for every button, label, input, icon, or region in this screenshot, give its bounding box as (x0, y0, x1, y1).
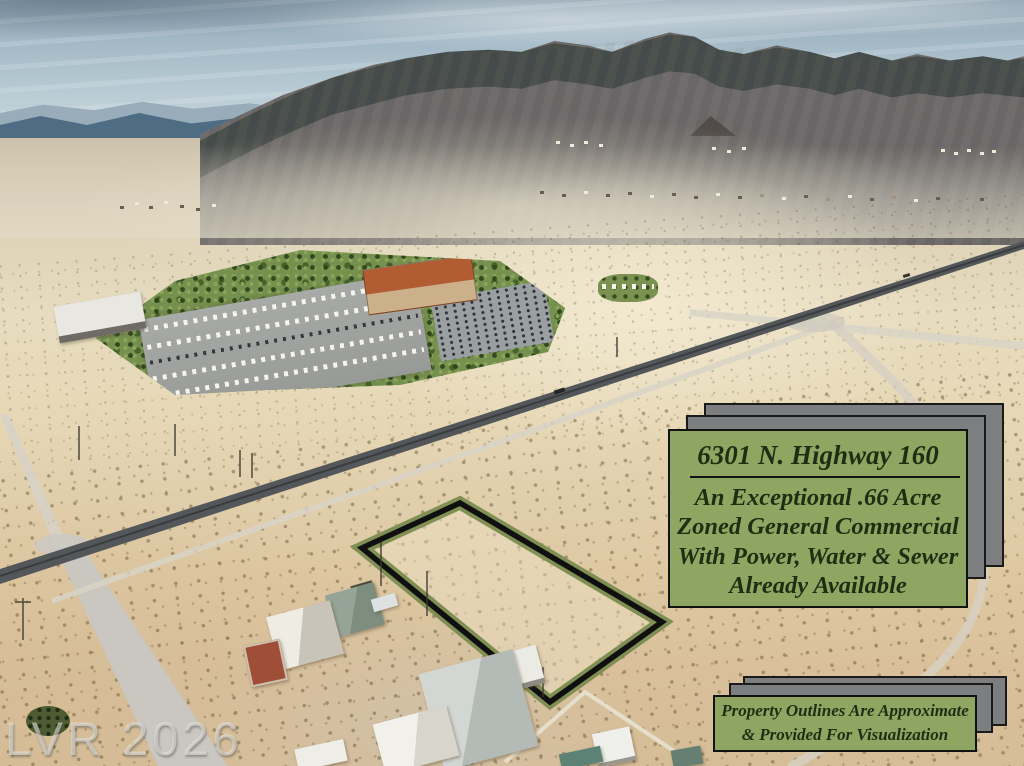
watermark: LVR 2026 (5, 711, 243, 766)
info-card: 6301 N. Highway 160 An Exceptional .66 A… (668, 429, 968, 608)
teal-roof-house-small (671, 746, 704, 766)
listing-address: 6301 N. Highway 160 (674, 435, 962, 473)
listing-line: Zoned General Commercial (674, 512, 962, 541)
aerial-photo: 6301 N. Highway 160 An Exceptional .66 A… (0, 0, 1024, 766)
disclaimer-card: Property Outlines Are Approximate & Prov… (713, 695, 977, 752)
disclaimer-board: Property Outlines Are Approximate & Prov… (713, 695, 977, 752)
listing-line: Already Available (674, 571, 962, 600)
teal-roof-house (559, 746, 603, 766)
listing-line: With Power, Water & Sewer (674, 542, 962, 571)
listing-line: An Exceptional .66 Acre (674, 483, 962, 512)
structures (0, 0, 1024, 766)
info-card-board: 6301 N. Highway 160 An Exceptional .66 A… (668, 429, 968, 608)
white-rv-bottom (294, 739, 347, 766)
disclaimer-line: & Provided For Visualization (717, 723, 973, 747)
white-gable-trailer (373, 705, 460, 766)
title-underline (690, 476, 960, 478)
disclaimer-line: Property Outlines Are Approximate (717, 699, 973, 723)
